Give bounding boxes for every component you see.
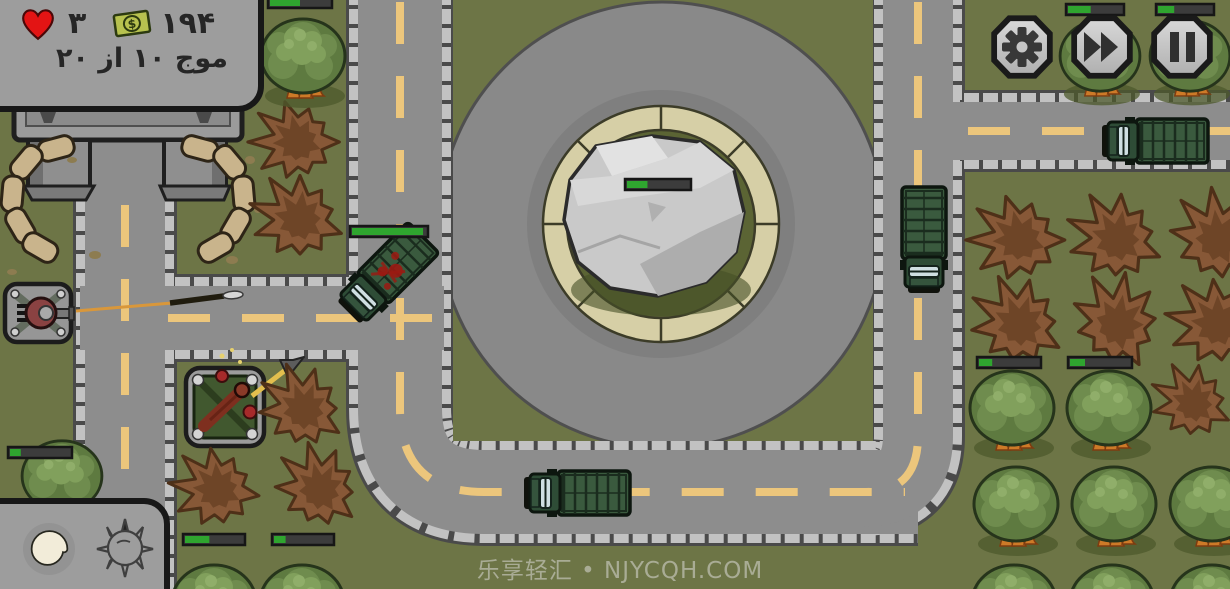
health-bar xyxy=(350,226,428,237)
health-bar xyxy=(1068,357,1132,368)
health-bar xyxy=(977,357,1041,368)
health-bar xyxy=(268,0,332,8)
spike-mine-ability-button[interactable] xyxy=(94,517,156,579)
abilities-panel xyxy=(0,498,170,589)
tree xyxy=(1170,467,1230,556)
spiral-ability-button[interactable] xyxy=(18,517,80,579)
fast-forward-icon xyxy=(1081,30,1123,64)
watermark: 乐享轻汇 • NJYCQH.COM xyxy=(395,551,845,585)
lives-count: ٣ xyxy=(68,6,86,41)
fast-forward-button[interactable] xyxy=(1070,14,1134,80)
spiral-icon xyxy=(19,518,79,578)
tree xyxy=(1072,467,1156,556)
money-count: ١٩۴ xyxy=(160,6,215,41)
pause-icon xyxy=(1164,30,1200,64)
money-bill-icon: $ xyxy=(111,7,155,40)
tree xyxy=(261,19,345,108)
tree xyxy=(970,371,1054,460)
pause-button[interactable] xyxy=(1150,14,1214,80)
enemy-truck xyxy=(524,469,630,517)
spike-mine-icon xyxy=(95,517,155,579)
settings-button[interactable] xyxy=(990,14,1054,80)
health-bar xyxy=(183,534,245,545)
control-buttons xyxy=(990,14,1214,80)
tree xyxy=(974,467,1058,556)
health-bar xyxy=(8,447,72,458)
game-screen: ٣ $ ١٩۴ موج ١٠ از ٢٠ xyxy=(0,0,1230,589)
tree xyxy=(1067,371,1151,460)
hud-panel: ٣ $ ١٩۴ موج ١٠ از ٢٠ xyxy=(0,0,264,112)
health-bar xyxy=(272,534,334,545)
enemy-truck xyxy=(900,187,948,293)
enemy-truck xyxy=(1102,117,1208,165)
machine-gun-tower[interactable] xyxy=(5,284,74,342)
rocket-tower[interactable] xyxy=(186,368,264,446)
health-bar xyxy=(625,179,691,190)
wave-label: موج ١٠ از ٢٠ xyxy=(0,43,228,74)
heart-icon xyxy=(20,7,56,41)
central-plaza xyxy=(439,0,885,448)
gear-icon xyxy=(999,24,1045,70)
boulder xyxy=(564,136,744,296)
